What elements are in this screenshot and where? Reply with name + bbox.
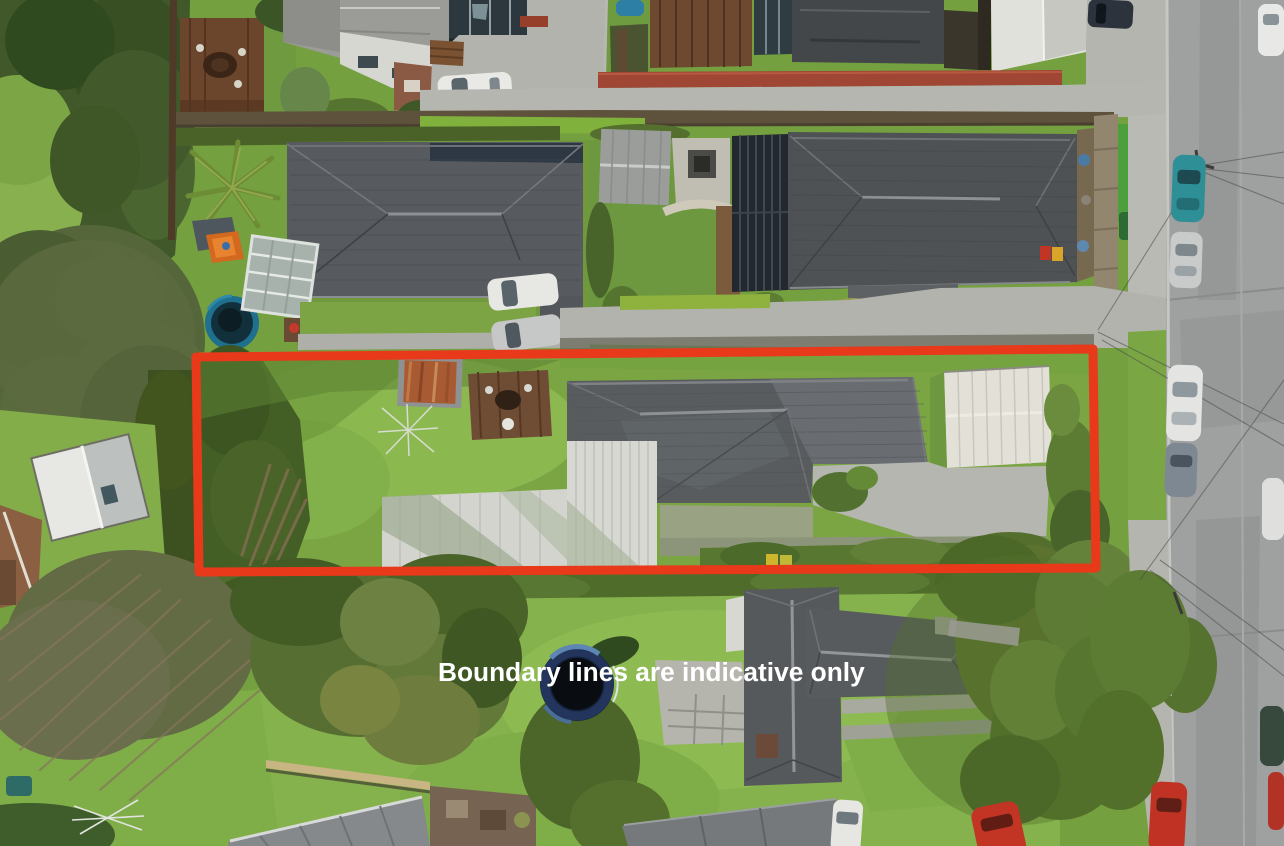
svg-text:Boundary lines are indicative: Boundary lines are indicative only <box>438 657 865 687</box>
